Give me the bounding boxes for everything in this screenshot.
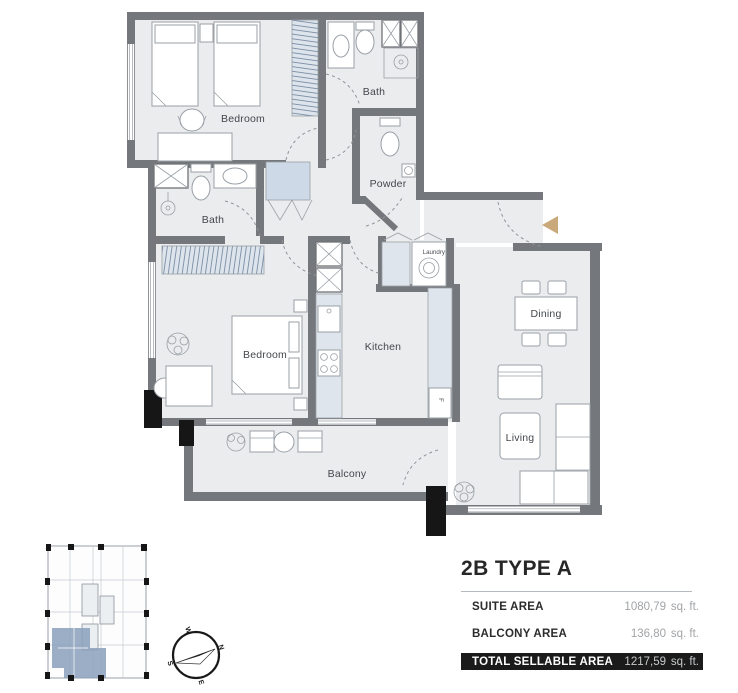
floorplan-page: Bedroom Bath Powder Bath xyxy=(0,0,738,693)
balcony-label: Balcony xyxy=(328,468,367,480)
divider xyxy=(461,591,692,592)
unit-type-title: 2B TYPE A xyxy=(461,556,703,581)
balcony-area-unit: sq. ft. xyxy=(666,628,703,640)
laundry-label: Laundry xyxy=(423,249,446,256)
suite-area-row: SUITE AREA 1080,79 sq. ft. xyxy=(461,595,703,619)
living-label: Living xyxy=(506,432,535,444)
bath-1-label: Bath xyxy=(363,86,385,98)
bath-2-label: Bath xyxy=(202,214,224,226)
compass-n: N xyxy=(216,644,224,651)
compass-s: S xyxy=(166,660,174,667)
total-area-value: 1217,59 xyxy=(624,656,666,668)
balcony-area-label: BALCONY AREA xyxy=(472,628,567,640)
compass-rose: N E S W xyxy=(166,626,225,686)
balcony-area-row: BALCONY AREA 136,80 sq. ft. xyxy=(461,622,703,646)
unit-info-panel: 2B TYPE A SUITE AREA 1080,79 sq. ft. BAL… xyxy=(461,556,703,670)
bedroom-1-label: Bedroom xyxy=(221,113,265,125)
balcony-area-value: 136,80 xyxy=(631,628,666,640)
total-sellable-area-row: TOTAL SELLABLE AREA 1217,59 sq. ft. xyxy=(461,653,703,670)
suite-area-unit: sq. ft. xyxy=(666,601,703,613)
dining-label: Dining xyxy=(531,308,562,320)
compass-e: E xyxy=(197,679,205,686)
powder-label: Powder xyxy=(370,178,407,190)
suite-area-label: SUITE AREA xyxy=(472,601,544,613)
entry-arrow-icon xyxy=(542,216,558,234)
kitchen-label: Kitchen xyxy=(365,341,401,353)
fridge-label: F xyxy=(437,398,444,402)
suite-area-value: 1080,79 xyxy=(624,601,666,613)
bedroom-2-label: Bedroom xyxy=(243,349,287,361)
total-area-label: TOTAL SELLABLE AREA xyxy=(472,656,613,668)
total-area-unit: sq. ft. xyxy=(666,656,703,668)
key-plan xyxy=(45,544,149,681)
